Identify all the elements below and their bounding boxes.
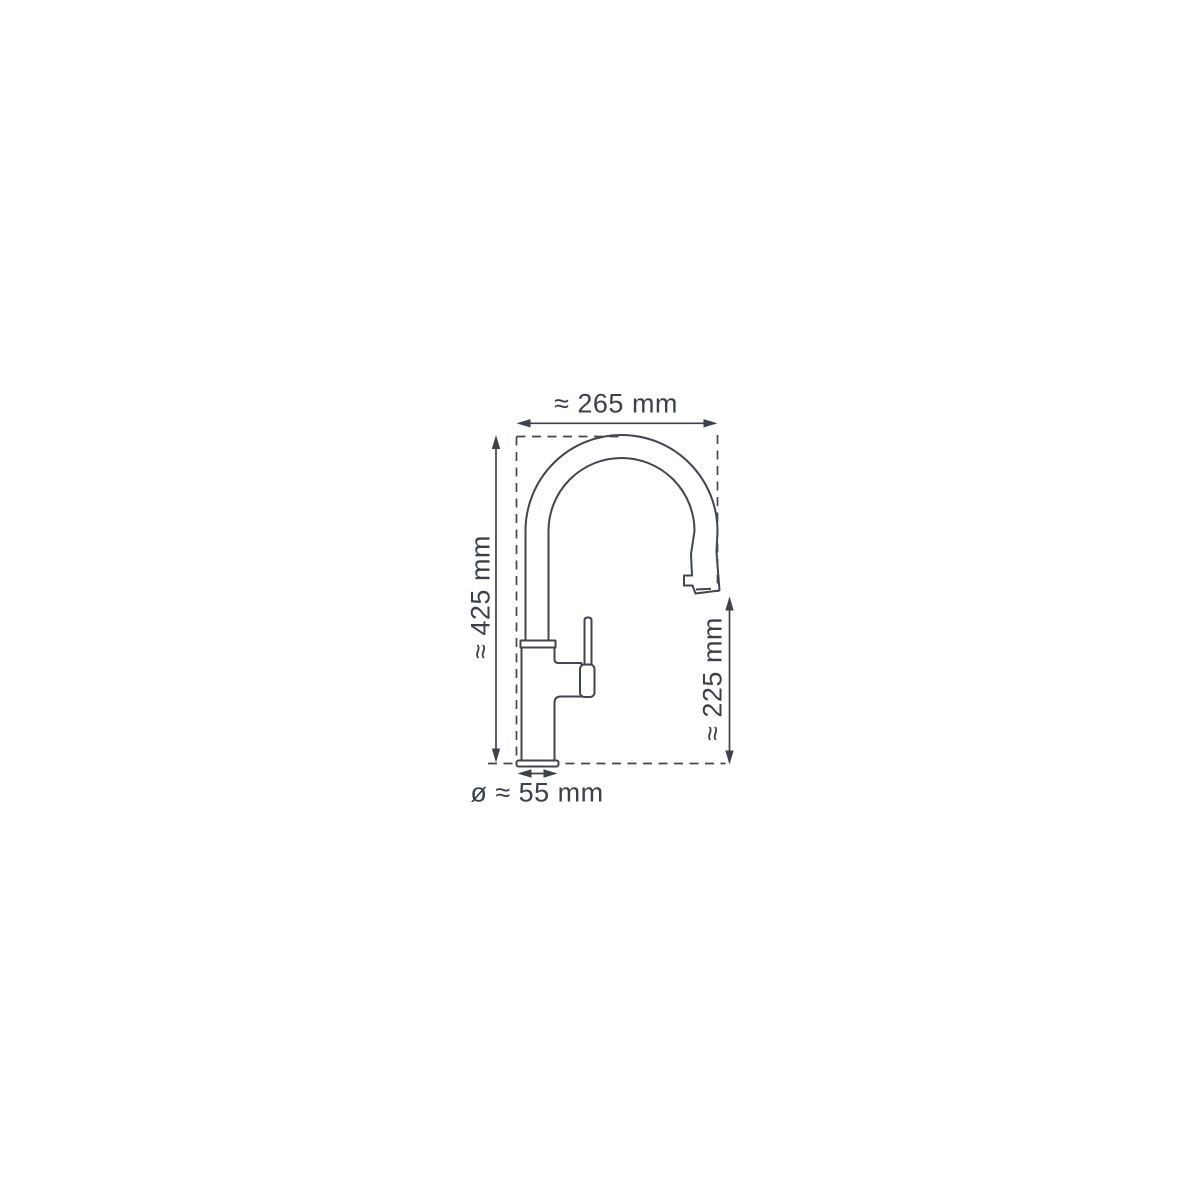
faucet-collar — [521, 641, 556, 648]
outlet-height-arrowhead-down-icon — [725, 751, 733, 765]
faucet-handle-cartridge — [580, 665, 595, 698]
dimension-arrow-outreach — [517, 419, 718, 427]
base-diameter-arrowhead-right-icon — [544, 769, 558, 777]
dimension-label-base-diameter: ø ≈ 55 mm — [470, 778, 603, 809]
overall-height-arrowhead-down-icon — [492, 749, 500, 763]
dimension-label-outreach: ≈ 265 mm — [554, 389, 678, 420]
base-diameter-arrowhead-left-icon — [518, 769, 532, 777]
outreach-arrowhead-right-icon — [704, 419, 718, 427]
overall-height-arrowhead-up-icon — [492, 435, 500, 449]
technical-drawing-canvas: ≈ 265 mm ≈ 425 mm ≈ 225 mm ø ≈ 55 mm — [0, 0, 1200, 1200]
faucet-base-flange — [517, 761, 559, 767]
faucet-diagram-svg — [0, 0, 1200, 1200]
outlet-height-arrowhead-up-icon — [725, 597, 733, 611]
dimension-label-overall-height: ≈ 425 mm — [466, 535, 497, 659]
faucet-lever-handle — [585, 618, 592, 669]
faucet-spout-path — [526, 435, 720, 641]
outreach-arrowhead-left-icon — [517, 419, 531, 427]
dimension-label-outlet-height: ≈ 225 mm — [698, 617, 729, 741]
dimension-arrow-base-diameter — [518, 769, 558, 777]
faucet-outline — [517, 435, 720, 767]
spout-aerator-line — [696, 589, 711, 590]
faucet-body-path — [522, 648, 582, 761]
